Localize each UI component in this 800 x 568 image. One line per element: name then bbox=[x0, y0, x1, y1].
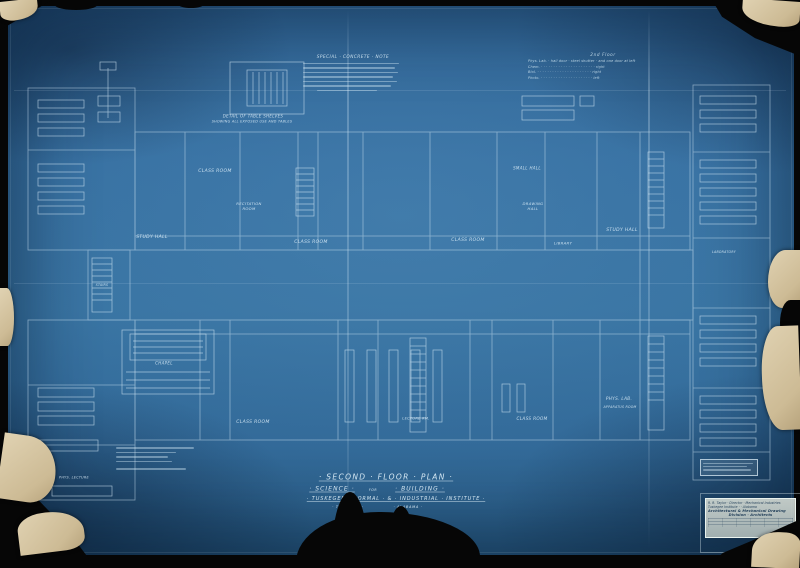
note-line bbox=[703, 463, 753, 464]
photo-backdrop: Class RoomRecitation RoomStudy HallClass… bbox=[0, 0, 800, 568]
fold-crease-vertical-right bbox=[648, 10, 650, 550]
note-line bbox=[303, 67, 395, 69]
note-line bbox=[116, 461, 172, 463]
stamp-line4: Division · Architects bbox=[708, 513, 793, 517]
door-schedule-row: Phys. Lab. · hall door · steel shutter ·… bbox=[528, 59, 678, 63]
torn-paper-fragment bbox=[0, 288, 14, 346]
detail-caption-line1: Detail of Table Shelves bbox=[223, 113, 284, 118]
note-line bbox=[303, 85, 391, 87]
note-line bbox=[116, 447, 194, 449]
note-line bbox=[116, 456, 168, 458]
note-line bbox=[116, 452, 176, 454]
torn-edge bbox=[178, 0, 204, 8]
door-schedule-rows: Phys. Lab. · hall door · steel shutter ·… bbox=[528, 59, 678, 80]
specification-box bbox=[700, 459, 758, 476]
fold-crease-horizontal-middle bbox=[14, 283, 786, 284]
note-line bbox=[317, 90, 377, 92]
drawing-title: · Second · Floor · Plan · bbox=[319, 473, 453, 482]
note-line bbox=[303, 63, 399, 65]
stamp-signature-grid bbox=[708, 518, 793, 527]
note-line bbox=[303, 81, 397, 83]
drawing-subtitle-building: · Building · bbox=[395, 486, 445, 493]
note-line bbox=[703, 469, 751, 470]
door-schedule-heading: 2nd Floor bbox=[528, 52, 678, 57]
note-line bbox=[703, 466, 747, 467]
note-line bbox=[303, 76, 393, 78]
door-schedule-row: Photo. · · · · · · · · · · · · · · · · ·… bbox=[528, 76, 678, 80]
material-list-block bbox=[116, 444, 198, 473]
note-line bbox=[116, 468, 186, 470]
drawing-subtitle-for: for bbox=[369, 488, 377, 492]
institution-name: · Tuskegee · Normal · & · Industrial · I… bbox=[307, 496, 485, 502]
note-line bbox=[303, 72, 398, 74]
door-schedule: 2nd Floor Phys. Lab. · hall door · steel… bbox=[528, 52, 678, 81]
detail-caption-line2: Showing all exposed use and tables bbox=[212, 120, 293, 125]
door-schedule-row: Biol. · · · · · · · · · · · · · · · · · … bbox=[528, 70, 678, 74]
concrete-note-block: Special · Concrete · Note bbox=[303, 54, 403, 94]
concrete-note-heading: Special · Concrete · Note bbox=[303, 54, 403, 60]
torn-edge bbox=[55, 0, 97, 10]
door-schedule-row: Chem. · · · · · · · · · · · · · · · · · … bbox=[528, 65, 678, 69]
